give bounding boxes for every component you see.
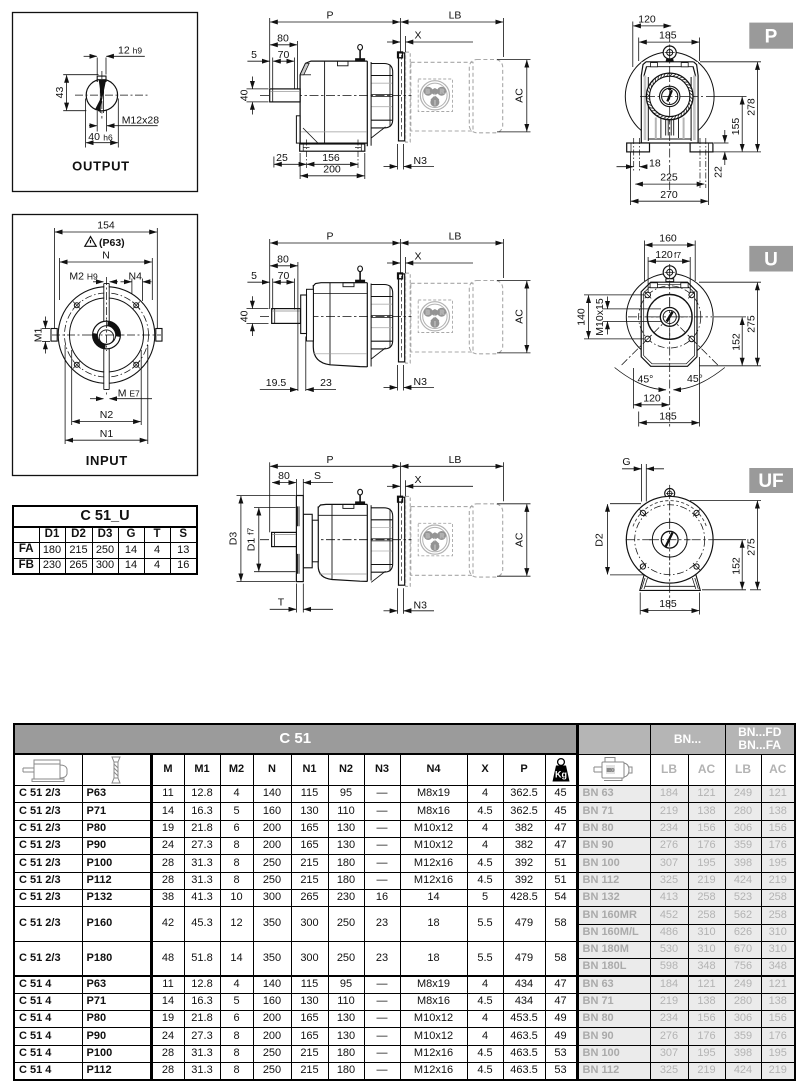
svg-text:IEC: IEC (607, 767, 615, 772)
svg-text:154: 154 (97, 220, 115, 232)
svg-text:M1: M1 (32, 328, 44, 343)
svg-text:N4: N4 (129, 270, 143, 282)
svg-text:Kg: Kg (555, 769, 567, 779)
svg-text:N1: N1 (100, 428, 114, 440)
svg-text:(P63): (P63) (99, 237, 125, 249)
svg-text:N: N (102, 250, 110, 262)
svg-text:INPUT: INPUT (86, 453, 128, 468)
svg-text:M2 H9: M2 H9 (69, 270, 98, 282)
svg-text:M E7: M E7 (118, 387, 140, 399)
svg-text:N2: N2 (100, 409, 114, 421)
